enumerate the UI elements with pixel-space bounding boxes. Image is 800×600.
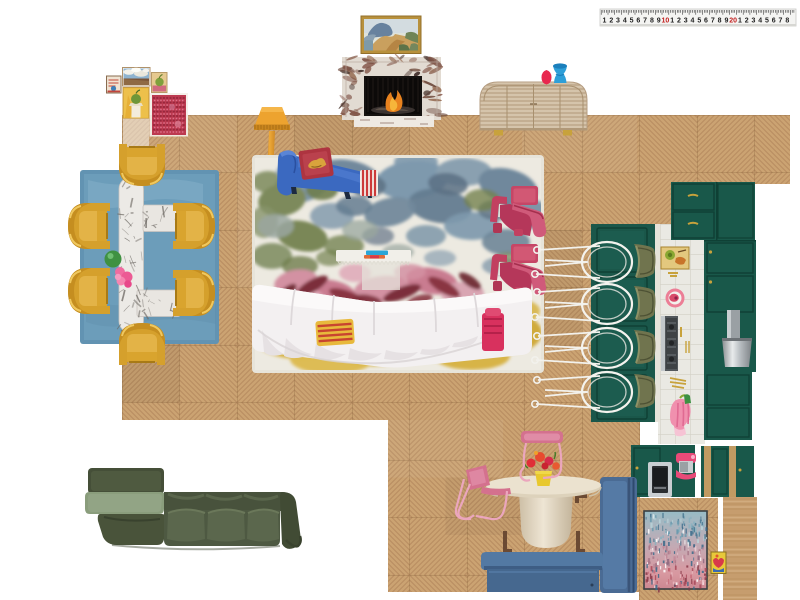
- svg-text:6: 6: [636, 18, 640, 25]
- svg-text:8: 8: [785, 18, 789, 25]
- svg-text:9: 9: [724, 18, 728, 25]
- svg-text:2: 2: [677, 18, 681, 25]
- svg-text:4: 4: [623, 18, 627, 25]
- svg-text:7: 7: [779, 18, 783, 25]
- svg-text:9: 9: [657, 18, 661, 25]
- svg-text:3: 3: [684, 18, 688, 25]
- svg-text:3: 3: [616, 18, 620, 25]
- svg-text:7: 7: [643, 18, 647, 25]
- svg-text:6: 6: [772, 18, 776, 25]
- svg-text:2: 2: [745, 18, 749, 25]
- svg-text:6: 6: [704, 18, 708, 25]
- svg-text:4: 4: [758, 18, 762, 25]
- svg-text:1: 1: [738, 18, 742, 25]
- svg-text:4: 4: [691, 18, 695, 25]
- svg-text:3: 3: [751, 18, 755, 25]
- svg-text:20: 20: [729, 18, 737, 25]
- svg-text:5: 5: [697, 18, 701, 25]
- svg-text:1: 1: [603, 18, 607, 25]
- svg-text:1: 1: [670, 18, 674, 25]
- svg-text:7: 7: [711, 18, 715, 25]
- svg-text:8: 8: [650, 18, 654, 25]
- svg-text:10: 10: [662, 18, 670, 25]
- svg-text:5: 5: [630, 18, 634, 25]
- svg-text:5: 5: [765, 18, 769, 25]
- svg-text:8: 8: [718, 18, 722, 25]
- svg-text:2: 2: [609, 18, 613, 25]
